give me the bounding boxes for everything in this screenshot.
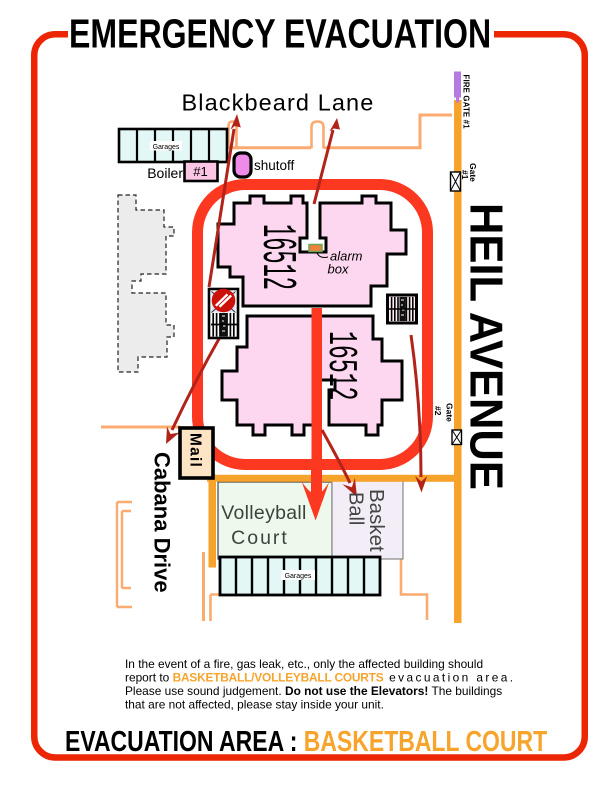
svg-text:Blackbeard Lane: Blackbeard Lane xyxy=(182,90,375,116)
svg-text:#1: #1 xyxy=(460,170,470,180)
svg-text:Cabana Drive: Cabana Drive xyxy=(150,452,175,593)
svg-text:shutoff: shutoff xyxy=(254,158,295,173)
svg-text:box: box xyxy=(328,262,349,277)
svg-text:that are not affected, please: that are not affected, please stay insid… xyxy=(125,698,384,712)
svg-text:Gate: Gate xyxy=(445,403,455,422)
svg-text:16512: 16512 xyxy=(316,331,363,401)
svg-text:Boiler: Boiler xyxy=(147,165,183,181)
svg-text:In the event of a fire, gas le: In the event of a fire, gas leak, etc., … xyxy=(125,657,483,671)
svg-text:EMERGENCY EVACUATION: EMERGENCY EVACUATION xyxy=(69,11,491,57)
svg-text:Please use sound judgement. Do: Please use sound judgement. Do not use t… xyxy=(125,684,502,698)
svg-text:HEIL AVENUE: HEIL AVENUE xyxy=(460,203,511,490)
svg-text:Basket: Basket xyxy=(365,489,388,552)
svg-text:Court: Court xyxy=(231,527,289,549)
svg-text:Mail: Mail xyxy=(187,433,204,468)
svg-text:#2: #2 xyxy=(433,406,443,416)
svg-text:FIRE GATE #1: FIRE GATE #1 xyxy=(462,75,471,130)
svg-text:Volleyball: Volleyball xyxy=(221,502,306,524)
svg-text:Ball: Ball xyxy=(345,492,367,525)
svg-text:#1: #1 xyxy=(193,164,207,179)
svg-text:EVACUATION AREA : BASKETBALL C: EVACUATION AREA : BASKETBALL COURT xyxy=(65,727,547,758)
svg-text:report to BASKETBALL/VOLLEYBAL: report to BASKETBALL/VOLLEYBALL COURTS e… xyxy=(125,671,515,685)
svg-text:16512: 16512 xyxy=(249,224,303,290)
